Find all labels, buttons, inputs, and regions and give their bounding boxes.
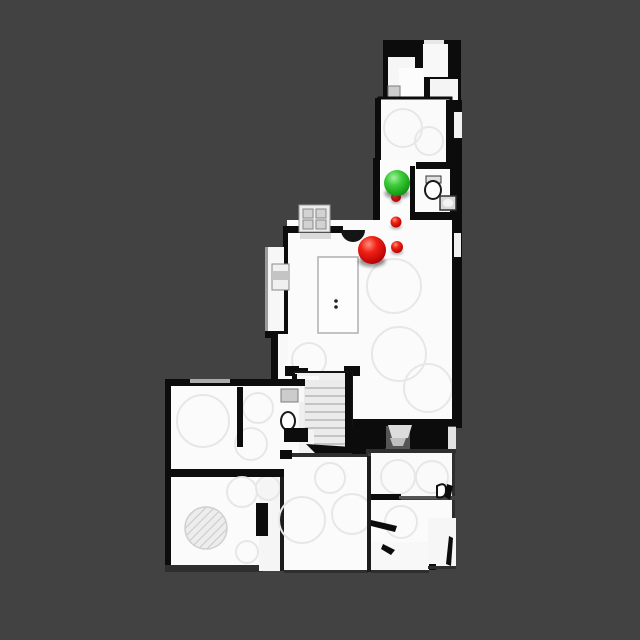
bathroom-upper [410, 163, 462, 220]
floorplan-canvas [0, 0, 640, 640]
bottom-middle-room [279, 450, 372, 573]
floorplan-viewer [0, 0, 640, 640]
striped-rug [185, 507, 227, 549]
shower-pan-icon [281, 389, 298, 402]
waypoint-red-dot-middle[interactable] [391, 217, 402, 228]
bottom-left-room [165, 477, 263, 572]
waypoint-red-dot-lower[interactable] [391, 241, 403, 253]
kitchen-island [318, 257, 358, 333]
toilet-icon-2 [281, 412, 295, 430]
marker-red-sphere-large[interactable] [358, 236, 386, 264]
toilet-icon [425, 181, 441, 199]
marker-green-sphere[interactable] [384, 170, 410, 196]
toilet-icon-3 [437, 484, 446, 497]
